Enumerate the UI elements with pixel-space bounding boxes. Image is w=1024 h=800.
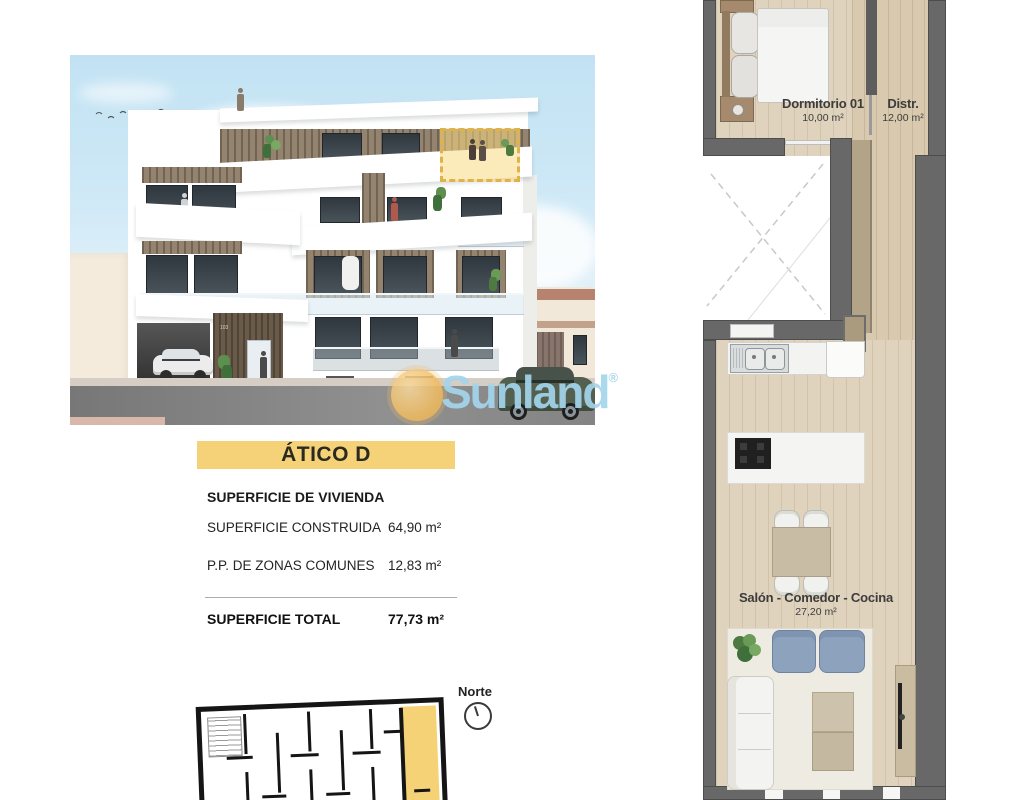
keyplan-wall [353,751,381,755]
coffee-table [812,692,854,732]
keyplan-wall [369,709,374,749]
balcony-person [451,329,458,357]
divider [205,597,457,598]
window [146,255,188,295]
surface-value: 12,83 m² [388,558,441,573]
window-opening [730,324,774,338]
window [194,255,238,295]
sliding-door [866,0,877,95]
balcony-wood-band [142,241,242,254]
keyplan-wall [307,711,312,751]
keyplan: Norte [196,690,496,800]
surface-label: P.P. DE ZONAS COMUNES [207,558,375,573]
registered-mark: ® [608,370,616,385]
watermark: Sunland® [391,363,646,433]
highlight-person [479,140,486,161]
keyplan-wall [326,792,350,796]
wood-pillar [362,173,385,223]
roof-person [237,88,244,111]
surface-label: SUPERFICIE CONSTRUIDA [207,520,381,535]
keyplan-wall [414,789,430,793]
keyplan-wall [227,756,253,760]
unit-highlight-box [440,128,520,182]
north-compass-icon [464,702,492,730]
wall-segment [830,138,852,333]
hanging-figure [342,256,359,290]
balcony-plant [488,269,506,295]
building-number: 103 [220,325,228,331]
wall-segment [703,340,716,800]
balcony-wood-band [142,167,242,183]
room-label-block: Distr. 12,00 m² [868,96,938,124]
brochure-page: 103 Sunland® ÁTICO D SUPERFICIE DE VIVIE… [0,0,1024,800]
unit-title-banner: ÁTICO D [197,441,455,469]
coffee-table [812,732,854,771]
armchair [772,630,816,673]
room-name: Salón - Comedor - Cocina [728,590,904,605]
plant [731,634,765,670]
balcony-plant [432,187,452,217]
tv-unit [895,665,916,777]
room-area: 12,00 m² [868,112,938,124]
bed-duvet [757,8,829,103]
kitchen-sink [730,344,789,373]
highlight-plant [499,139,515,159]
neighbor-window [573,335,587,365]
dining-table [772,527,831,577]
keyplan-wall [243,714,248,754]
cloud [78,83,173,103]
room-name: Distr. [868,96,938,111]
curb [70,417,165,425]
armchair [819,630,865,673]
window-gap [883,787,900,799]
surface-section-label: SUPERFICIE DE VIVIENDA [207,489,384,505]
neighbor-building-left [70,253,132,387]
surface-value: 64,90 m² [388,520,441,535]
balcony-person [391,197,398,221]
keyplan-outline [193,693,450,800]
highlight-person [469,139,476,160]
window [383,256,427,294]
sun-logo-icon [391,369,443,421]
wall-segment [703,320,845,340]
room-floor-corridor [852,0,928,160]
keyplan-wall [291,753,319,757]
keyplan-stairs [207,716,243,757]
wall-segment [703,138,785,156]
keyplan-wall [371,767,376,800]
pillow [731,12,759,54]
keyplan-wall [276,733,281,793]
keyplan-wall [262,794,286,798]
north-label: Norte [458,684,492,699]
sofa [727,676,774,790]
building-side-face [523,175,537,387]
watermark-text: Sunland® [441,365,616,419]
surface-total-value: 77,73 m² [388,611,444,627]
room-area: 27,20 m² [728,606,904,618]
surface-total-label: SUPERFICIE TOTAL [207,611,340,627]
kitchen-appliance [826,341,865,378]
wall-segment [928,0,946,160]
pillow [731,55,759,98]
atico-plant [262,135,284,161]
wall-segment [915,155,946,800]
wall-segment [703,0,716,156]
keyplan-wall [309,769,314,800]
keyplan-wall [245,772,250,800]
room-label-block: Salón - Comedor - Cocina 27,20 m² [728,590,904,618]
door-opening [785,140,834,145]
lamp [732,104,744,116]
bed-headboard [722,11,730,97]
keyplan-wall [340,730,345,790]
closet-strip [852,140,872,333]
void-dashed-lines [703,156,830,320]
window [320,197,360,223]
induction-hob [735,438,771,469]
